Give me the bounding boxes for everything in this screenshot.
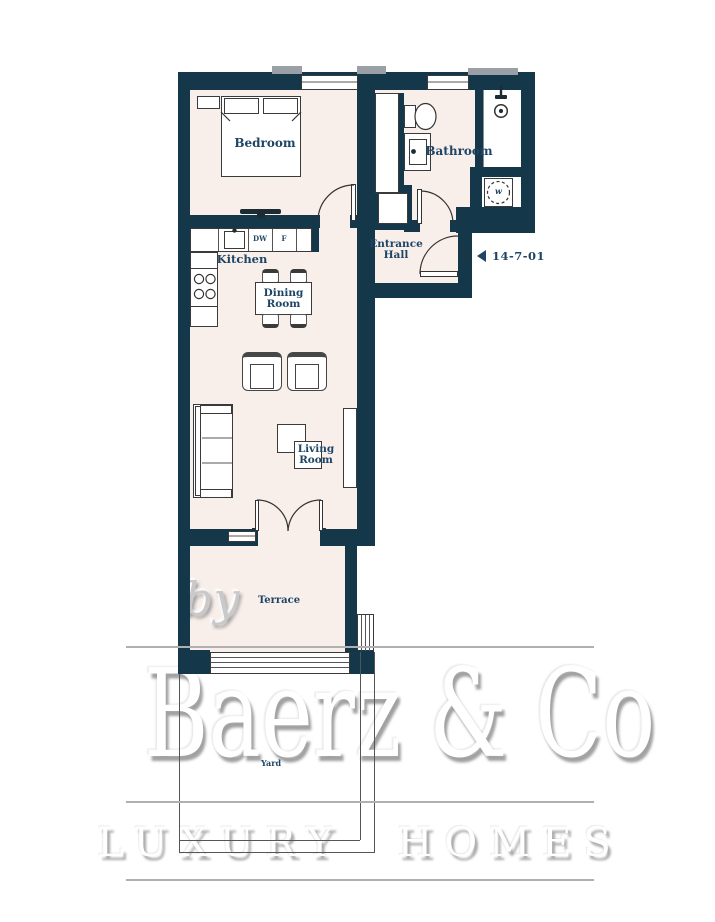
wall-terrace-east (345, 546, 357, 652)
label-bedroom: Bedroom (215, 137, 315, 150)
pillow-right (263, 98, 298, 114)
label-fridge: F (272, 235, 296, 243)
wall-left-of-washer-nook (470, 177, 482, 210)
step-line (211, 657, 349, 658)
sofa-back (195, 406, 201, 496)
label-entrance-line2: Hall (384, 249, 409, 261)
bathroom-door-leaf (417, 189, 422, 224)
watermark-rule-top (126, 646, 594, 648)
label-kitchen: Kitchen (202, 253, 282, 265)
armchair-seat (250, 364, 274, 389)
label-living-line2: Room (299, 454, 333, 466)
dining-chair (262, 269, 279, 283)
terrace-corner-left (178, 650, 210, 674)
nightstand (197, 96, 220, 109)
wall-lower-east (357, 283, 375, 546)
label-entrance-line1: Entrance (369, 238, 423, 250)
wall-left (178, 72, 190, 674)
sofa-arm-bottom (200, 489, 232, 498)
yard-line-right-outer (374, 652, 375, 852)
label-dining-line1: Dining (264, 287, 304, 299)
terrace-window (228, 531, 256, 542)
sofa-arm-top (200, 405, 232, 414)
tall-closet (375, 93, 399, 193)
french-door-leaf-right (319, 500, 323, 531)
label-dishwasher: DW (248, 235, 272, 243)
armchair-seat (295, 364, 319, 389)
bathroom-window (427, 75, 469, 90)
label-bathroom: Bathroom (409, 145, 509, 158)
yard-line-left (179, 674, 180, 852)
step-line (211, 667, 349, 668)
wall-above-washer-nook (470, 167, 521, 177)
yard-line-bottom-outer (179, 852, 375, 853)
unit-pointer-icon (477, 250, 486, 262)
bedroom-door-leaf (351, 184, 356, 221)
wall-right-notch (456, 207, 535, 233)
label-living-room: Living Room (266, 444, 366, 467)
unit-number: 14-7-01 (492, 250, 552, 262)
label-yard: Yard (246, 759, 296, 768)
yard-line-bottom-inner (179, 840, 360, 841)
wall-bedroom-south (178, 215, 320, 228)
label-dining-line2: Room (267, 298, 301, 310)
tv-stand (257, 214, 265, 218)
watermark-rule-middle (126, 801, 594, 803)
pillow-left (224, 98, 259, 114)
label-washer: w (484, 187, 513, 196)
kitchen-sink (224, 231, 245, 249)
window-sill (272, 66, 302, 74)
wall-closet-strip (399, 93, 404, 193)
yard-line-right-inner (360, 652, 361, 840)
wall-shower-partition (475, 86, 483, 172)
window-sill (357, 66, 386, 74)
stove (190, 268, 218, 307)
wall-entrance-east (458, 233, 472, 288)
label-terrace: Terrace (229, 596, 329, 607)
dining-chair (290, 269, 307, 283)
shower-tray (483, 85, 521, 172)
watermark-rule-bottom (126, 879, 594, 881)
window-sill (468, 68, 518, 75)
label-entrance-hall: Entrance Hall (346, 239, 446, 262)
entrance-door-leaf (420, 271, 458, 277)
toilet-tank (404, 105, 416, 128)
dining-chair (262, 314, 279, 328)
counter-end-wall (312, 228, 319, 252)
terrace-corner-right (350, 650, 374, 674)
dining-chair (290, 314, 307, 328)
step-line (211, 662, 349, 663)
french-door-leaf-left (255, 500, 259, 531)
wall-terrace-north-right (322, 529, 357, 546)
floorplan-page: Bedroom Bathroom Kitchen Dining Room Ent… (0, 0, 715, 922)
label-dining-room: Dining Room (255, 288, 312, 311)
label-living-line1: Living (298, 443, 334, 455)
hall-closet (378, 193, 408, 224)
bedroom-window (301, 75, 358, 90)
